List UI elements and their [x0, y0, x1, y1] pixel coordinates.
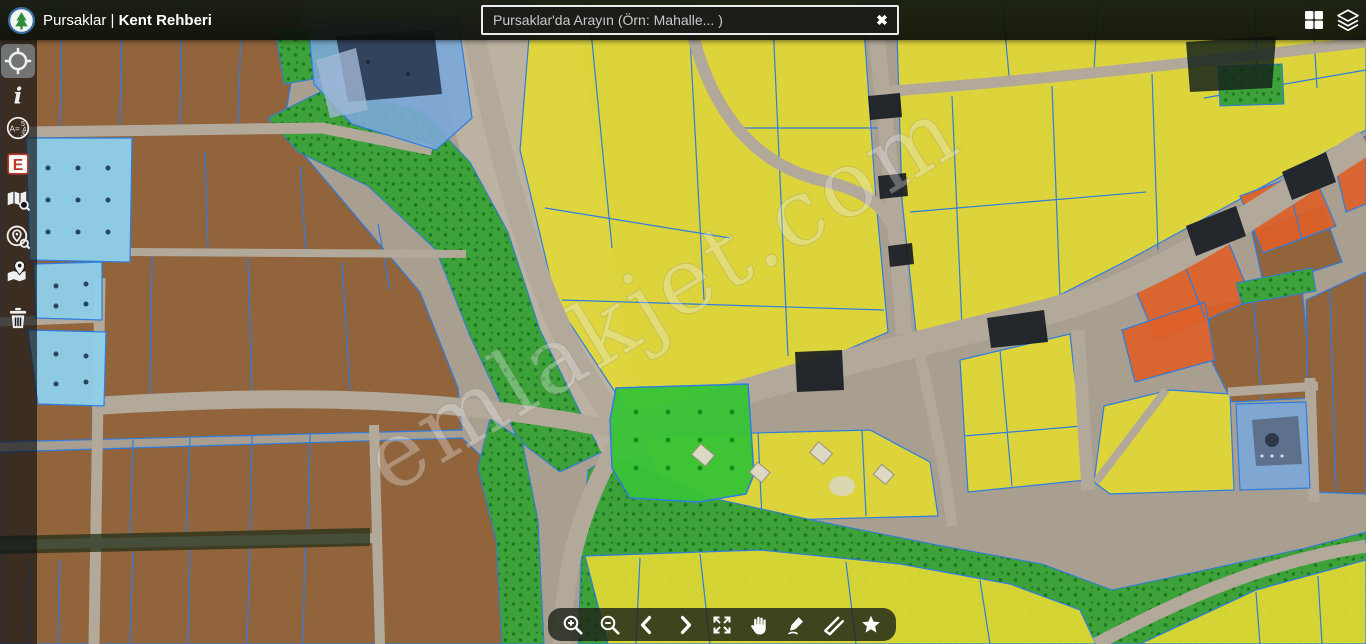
zoom-out-button[interactable]	[597, 612, 623, 638]
favorites-button[interactable]	[858, 612, 884, 638]
basemap-grid-button[interactable]	[1300, 6, 1328, 34]
header-actions	[1300, 6, 1362, 34]
brand: Pursaklar | Kent Rehberi	[8, 7, 212, 34]
draw-button[interactable]	[784, 612, 810, 638]
previous-button[interactable]	[634, 612, 660, 638]
e-plan-icon: E	[5, 151, 31, 177]
hand-icon	[747, 613, 771, 637]
measure-button[interactable]	[821, 612, 847, 638]
zoom-out-icon	[598, 613, 622, 637]
zoom-in-icon	[561, 613, 585, 637]
green-field-parcel[interactable]	[610, 384, 754, 502]
place-search-icon	[5, 224, 31, 250]
search-box[interactable]: ✖	[481, 5, 899, 35]
svg-text:i: i	[14, 84, 23, 109]
map-pin-icon	[5, 258, 31, 284]
parcel-query-icon: A= 5 4 3	[5, 115, 31, 141]
map-search-icon	[5, 187, 31, 213]
chevron-right-icon	[673, 613, 697, 637]
crosshair-icon	[3, 46, 33, 76]
trash-icon	[5, 305, 31, 331]
nearest-places-button[interactable]	[3, 256, 33, 286]
page-title: Pursaklar | Kent Rehberi	[43, 12, 212, 29]
info-icon: i	[5, 83, 31, 109]
map-canvas[interactable]: emlakjet.com	[0, 0, 1366, 644]
title-bold: Kent Rehberi	[119, 12, 212, 29]
map-search-button[interactable]	[3, 185, 33, 215]
header: Pursaklar | Kent Rehberi ✖	[0, 0, 1366, 40]
pan-button[interactable]	[746, 612, 772, 638]
map-toolbar	[548, 608, 896, 641]
clear-button[interactable]	[3, 303, 33, 333]
locate-button[interactable]	[1, 44, 35, 78]
marker-pen-icon	[785, 613, 809, 637]
layers-button[interactable]	[1334, 6, 1362, 34]
ruler-icon	[822, 613, 846, 637]
zoom-in-button[interactable]	[560, 612, 586, 638]
layers-icon	[1336, 8, 1360, 32]
chevron-left-icon	[635, 613, 659, 637]
svg-text:3: 3	[21, 132, 25, 139]
expand-icon	[710, 613, 734, 637]
parcel-query-button[interactable]: A= 5 4 3	[3, 113, 33, 143]
pursaklar-logo-icon	[8, 7, 35, 34]
title-prefix: Pursaklar |	[43, 12, 114, 29]
svg-text:E: E	[13, 157, 23, 174]
fullscreen-button[interactable]	[709, 612, 735, 638]
grid-apps-icon	[1302, 8, 1326, 32]
left-tool-rail: i A= 5 4 3 E	[0, 40, 37, 644]
svg-text:A=: A=	[10, 124, 20, 133]
search-input[interactable]	[483, 12, 867, 28]
place-search-button[interactable]	[3, 222, 33, 252]
e-plan-button[interactable]: E	[3, 149, 33, 179]
next-button[interactable]	[672, 612, 698, 638]
info-button[interactable]: i	[3, 81, 33, 111]
star-icon	[859, 613, 883, 637]
search-clear-button[interactable]: ✖	[867, 7, 897, 33]
